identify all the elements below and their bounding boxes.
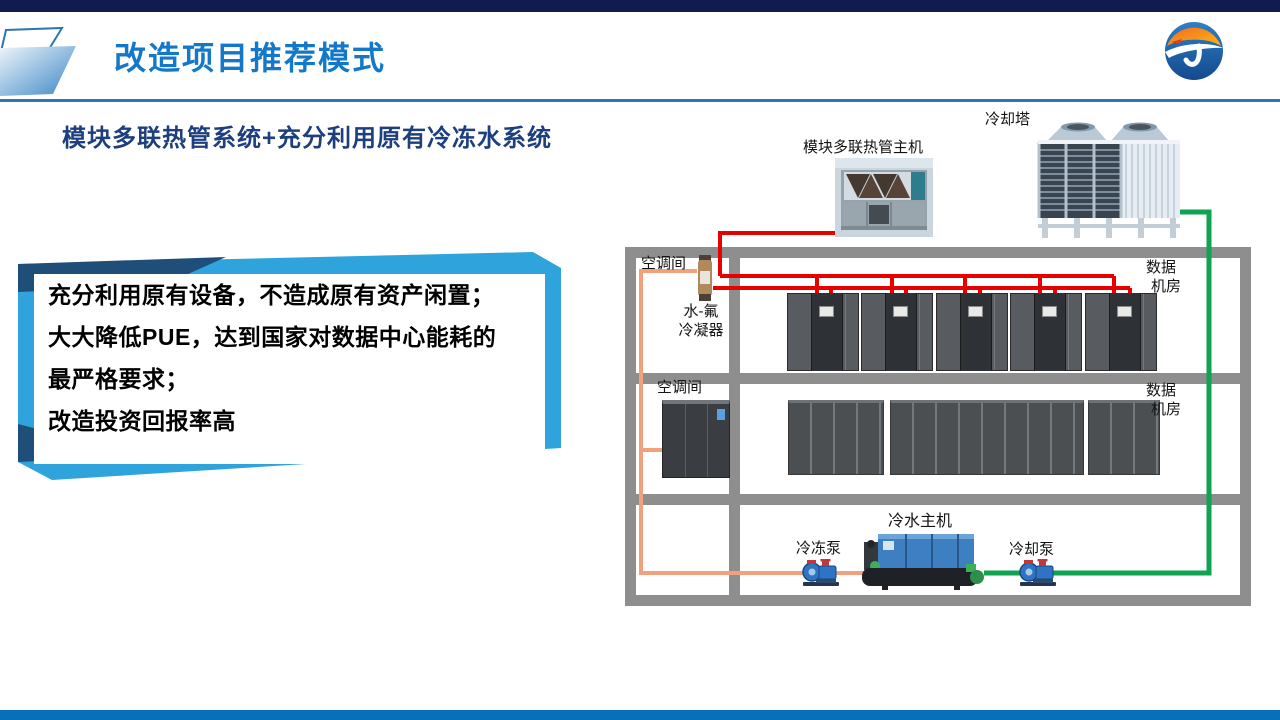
crac-unit-group bbox=[1010, 293, 1082, 371]
label-cooling-tower: 冷却塔 bbox=[985, 110, 1030, 129]
label-data-room-1: 数据 机房 bbox=[1146, 258, 1181, 296]
highlight-line: 大大降低PUE，达到国家对数据中心能耗的 bbox=[48, 316, 541, 358]
cooling-tower-image bbox=[1032, 118, 1187, 240]
server-rack-cluster bbox=[890, 400, 1084, 475]
label-chiller: 冷水主机 bbox=[888, 512, 952, 531]
crac-unit-group bbox=[861, 293, 933, 371]
cooling-water-pump-image bbox=[1019, 558, 1057, 586]
refrigerant-pipe bbox=[713, 233, 1130, 297]
company-logo-icon bbox=[1162, 18, 1226, 82]
water-chiller-image bbox=[862, 532, 985, 590]
header-corner-decoration-icon bbox=[0, 10, 120, 102]
highlight-box: 充分利用原有设备，不造成原有资产闲置； 大大降低PUE，达到国家对数据中心能耗的… bbox=[18, 250, 561, 482]
label-chilled-pump: 冷冻泵 bbox=[796, 539, 841, 558]
highlight-line: 改造投资回报率高 bbox=[48, 400, 541, 442]
system-diagram: 冷却塔 模块多联热管主机 空调间 水-氟 冷凝器 数据 机房 空调间 数据 机房… bbox=[612, 100, 1272, 620]
crac-unit-group bbox=[936, 293, 1008, 371]
highlight-line: 充分利用原有设备，不造成原有资产闲置； bbox=[48, 274, 541, 316]
highlight-line: 最严格要求； bbox=[48, 358, 541, 400]
slide-subtitle: 模块多联热管系统+充分利用原有冷冻水系统 bbox=[62, 118, 552, 153]
label-cooling-pump: 冷却泵 bbox=[1009, 540, 1054, 559]
server-rack-cluster bbox=[788, 400, 884, 475]
label-data-room-2: 数据 机房 bbox=[1146, 381, 1181, 419]
label-condenser: 水-氟 冷凝器 bbox=[666, 302, 736, 340]
crac-unit-group bbox=[787, 293, 859, 371]
slide-canvas: 改造项目推荐模式 模块多联热管系统+充分利用原有冷冻水系统 充分利用原有设备，不 bbox=[0, 0, 1280, 720]
label-module-host: 模块多联热管主机 bbox=[803, 138, 923, 157]
highlight-box-text: 充分利用原有设备，不造成原有资产闲置； 大大降低PUE，达到国家对数据中心能耗的… bbox=[48, 274, 541, 442]
crac-unit-group bbox=[1085, 293, 1157, 371]
crac-unit-floor2 bbox=[662, 400, 730, 478]
module-heat-pipe-host-image bbox=[835, 158, 933, 237]
chilled-water-pump-image bbox=[802, 558, 840, 586]
label-ac-room-2: 空调间 bbox=[657, 378, 702, 397]
label-ac-room-1: 空调间 bbox=[641, 254, 686, 273]
page-title: 改造项目推荐模式 bbox=[114, 33, 386, 79]
top-navy-bar bbox=[0, 0, 1280, 12]
water-fluorine-condenser-image bbox=[696, 255, 714, 301]
bottom-blue-bar bbox=[0, 710, 1280, 720]
